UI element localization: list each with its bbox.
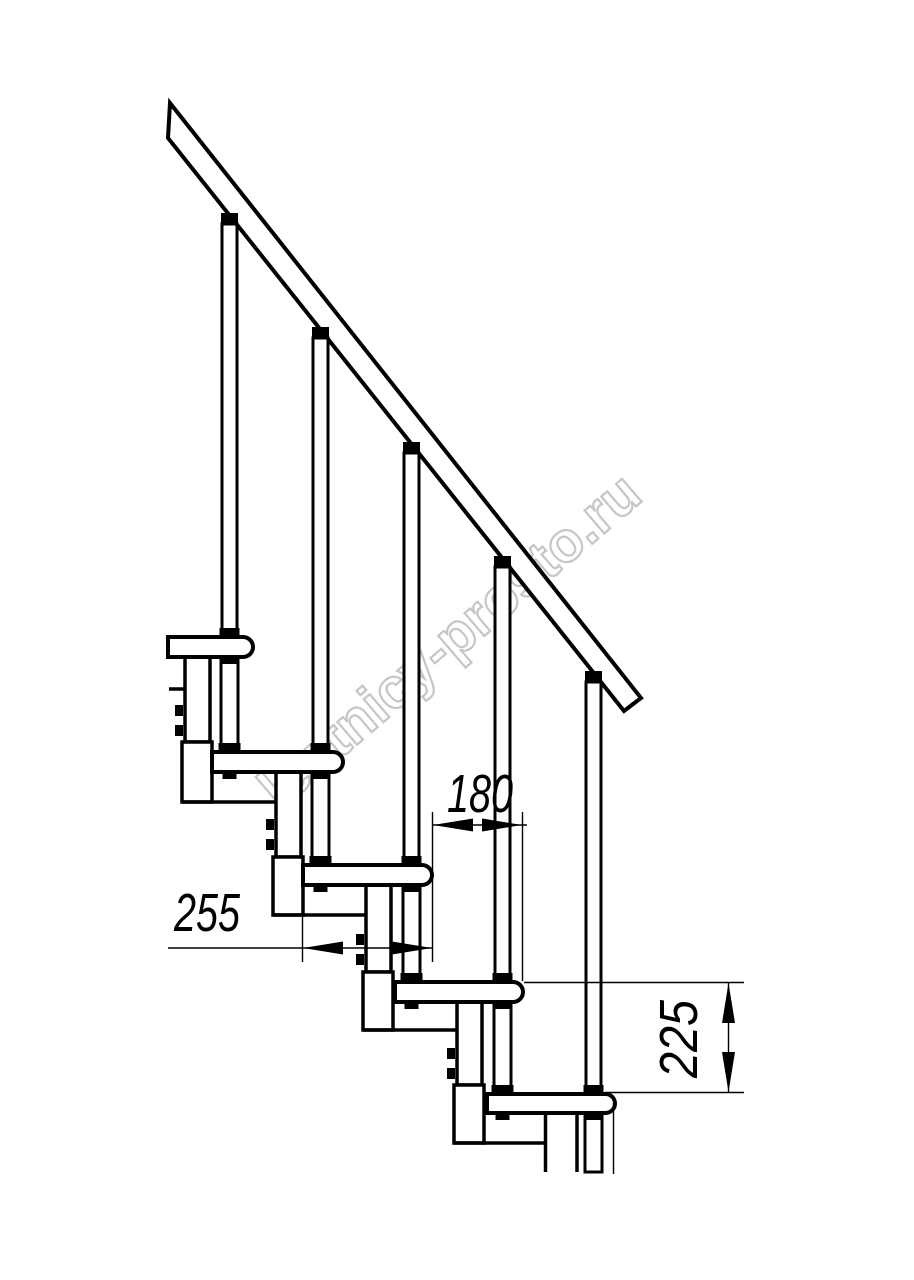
clamp-box-2	[273, 857, 303, 915]
nut-8	[496, 1112, 510, 1120]
support-column-1	[185, 657, 210, 742]
clamp-bolt-1a	[175, 705, 183, 716]
support-column-2	[276, 772, 301, 857]
clamp-box-4	[454, 1085, 484, 1143]
tread-collar-2	[311, 743, 331, 752]
support-column-3	[366, 885, 391, 972]
rail-collar-5	[585, 671, 602, 683]
dimension-arrow	[303, 942, 343, 955]
tread-1	[168, 637, 253, 657]
rail-collar-2	[312, 327, 329, 339]
foot-collar-2	[310, 856, 332, 865]
clamp-bolt-3b	[356, 954, 364, 965]
nut-1	[223, 656, 237, 664]
foot-collar-4	[492, 1085, 514, 1094]
dimension-225: 225	[524, 983, 744, 1175]
tread-collar-5	[584, 1085, 604, 1094]
nut-9	[587, 1112, 601, 1120]
clamp-bolt-4a	[447, 1048, 455, 1059]
rail-collar-1	[221, 213, 238, 225]
tread-2	[212, 752, 343, 772]
clamp-bolt-4b	[447, 1068, 455, 1079]
stair-technical-drawing: lestnicy-prosto.ru	[0, 0, 914, 1280]
tread-5	[487, 1094, 615, 1113]
nut-6	[405, 1001, 419, 1009]
baluster-sleeve-1	[221, 655, 238, 756]
rail-collar-3	[403, 442, 420, 454]
clamp-bolt-2b	[266, 839, 274, 850]
clamp-box-1	[182, 742, 212, 802]
tread-collar-4	[493, 973, 513, 982]
clamp-box-3	[363, 972, 393, 1030]
drawing-svg: lestnicy-prosto.ru	[0, 0, 914, 1280]
support-column-4	[457, 1002, 482, 1085]
dimension-arrow	[722, 1052, 735, 1092]
dimension-label-255: 255	[173, 883, 240, 943]
dimension-180: 180	[432, 764, 527, 981]
nut-2	[223, 771, 237, 779]
clamp-bolt-3a	[356, 934, 364, 945]
nut-3	[314, 771, 328, 779]
clamp-bolt-2a	[266, 819, 274, 830]
tread-4	[395, 982, 523, 1002]
dimension-label-180: 180	[447, 764, 513, 824]
baluster-sleeve-4	[494, 1000, 511, 1098]
tread-3	[303, 865, 432, 885]
dimension-label-225: 225	[649, 999, 709, 1079]
tread-collar-1	[220, 628, 240, 637]
baluster-sleeve-5	[585, 1111, 602, 1172]
baluster-2	[313, 338, 328, 756]
baluster-sleeve-2	[312, 770, 329, 869]
nut-5	[405, 884, 419, 892]
baluster-sleeve-3	[403, 883, 420, 986]
baluster-5	[586, 682, 601, 1098]
foot-collar-1	[219, 743, 241, 752]
foot-collar-3	[401, 973, 423, 982]
nut-7	[496, 1001, 510, 1009]
baluster-1	[222, 224, 237, 641]
tread-collar-3	[402, 856, 422, 865]
baluster-3	[404, 453, 419, 869]
dimension-arrow	[722, 983, 735, 1023]
nut-4	[314, 884, 328, 892]
clamp-bolt-1b	[175, 725, 183, 736]
rail-collar-4	[494, 556, 511, 568]
